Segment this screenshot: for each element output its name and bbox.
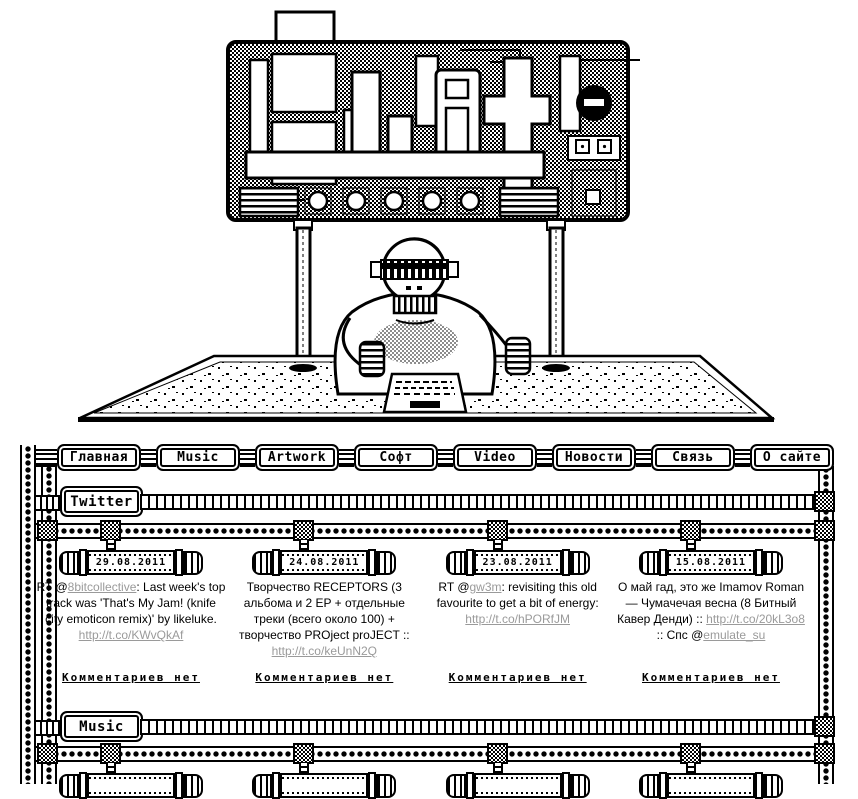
tweet-card: 24.08.2011 Творчество RECEPTORS (3 альбо… [229, 550, 419, 684]
plate-coil-icon [639, 774, 659, 798]
tweet-link[interactable]: http://t.co/KWvQkAf [79, 628, 184, 642]
pipe-junction [814, 743, 835, 764]
nav-button-label: Софт [379, 450, 412, 465]
music-card-partial [36, 773, 226, 798]
billboard [228, 12, 640, 230]
nav-button-osayte[interactable]: О сайте [750, 444, 834, 471]
pipe-junction [680, 520, 701, 541]
post-date: 23.08.2011 [474, 550, 562, 575]
tweet-text-segment: RT @ [37, 580, 68, 594]
plate-coil-icon [446, 774, 466, 798]
pipe-drop [493, 762, 503, 773]
tweet-link[interactable]: emulate_su [703, 628, 765, 642]
nav-button-artwork[interactable]: Artwork [255, 444, 339, 471]
plate-cap [368, 772, 376, 799]
post-date: 29.08.2011 [87, 550, 175, 575]
plate-cap [272, 772, 280, 799]
tweet-card: 23.08.2011 RT @gw3m: revisiting this old… [423, 550, 613, 684]
tweet-link[interactable]: http://t.co/20kL3o8 [706, 612, 805, 626]
pipe-coupler [636, 449, 651, 467]
comments-link[interactable]: Комментариев нет [449, 671, 587, 684]
plate-cap [562, 772, 570, 799]
music-card-partial [423, 773, 613, 798]
post-date [87, 773, 175, 798]
pipe-drop [106, 539, 116, 550]
pipe-junction [293, 743, 314, 764]
nav-button-music[interactable]: Music [156, 444, 240, 471]
plate-cap [272, 549, 280, 576]
twitter-posts: 29.08.2011 RT @8bitcollective: Last week… [36, 550, 806, 684]
post-date: 15.08.2011 [667, 550, 755, 575]
pipe-stub [34, 495, 60, 511]
nav-button-label: Главная [70, 450, 128, 465]
nav-button-label: Music [177, 450, 219, 465]
section-label-twitter[interactable]: Twitter [60, 486, 143, 517]
pipe-stub [34, 720, 60, 736]
plate-cap [466, 549, 474, 576]
pipe-drop [686, 539, 696, 550]
music-conveyor-pipe [36, 746, 834, 762]
twitter-label-pipe [140, 494, 820, 510]
nav-button-label: Artwork [268, 450, 326, 465]
nav-button-label: Новости [565, 450, 623, 465]
comments-link[interactable]: Комментариев нет [62, 671, 200, 684]
plate-cap [79, 772, 87, 799]
twitter-conveyor-pipe [36, 523, 834, 539]
music-label-pipe [140, 719, 820, 735]
tweet-text-segment: :: Спс @ [657, 628, 704, 642]
plate-coil-icon [183, 551, 203, 575]
date-plate: 23.08.2011 [446, 550, 590, 575]
plate-coil-icon [570, 551, 590, 575]
plate-cap [755, 772, 763, 799]
nav-button-label: Связь [672, 450, 714, 465]
pipe-junction [37, 743, 58, 764]
plate-coil-icon [252, 551, 272, 575]
nav-button-label: Video [474, 450, 516, 465]
pipe-junction [487, 743, 508, 764]
post-date: 24.08.2011 [280, 550, 368, 575]
pipe-drop [299, 762, 309, 773]
plate-coil-icon [446, 551, 466, 575]
pipe-junction [680, 743, 701, 764]
pipe-drop [686, 762, 696, 773]
pipe-drop [106, 762, 116, 773]
pipe-junction [814, 716, 835, 737]
pipe-coupler [141, 449, 156, 467]
pipe-coupler [537, 449, 552, 467]
pipe-coupler [36, 449, 57, 467]
plate-cap [659, 772, 667, 799]
date-plate: 24.08.2011 [252, 550, 396, 575]
pipe-coupler [735, 449, 750, 467]
plate-cap [175, 549, 183, 576]
nav-button-label: О сайте [763, 450, 821, 465]
plate-coil-icon [59, 774, 79, 798]
tweet-text: О май гад, это же Imamov Roman — Чумачеч… [616, 579, 806, 671]
plate-coil-icon [639, 551, 659, 575]
page: Главная Music Artwork Софт Video Новости… [0, 0, 858, 784]
tweet-text: Творчество RECEPTORS (3 альбома и 2 EP +… [229, 579, 419, 671]
plate-cap [755, 549, 763, 576]
pipe-coupler [438, 449, 453, 467]
post-date [667, 773, 755, 798]
comments-link[interactable]: Комментариев нет [255, 671, 393, 684]
tweet-text: RT @gw3m: revisiting this old favourite … [423, 579, 613, 671]
nav-button-svyaz[interactable]: Связь [651, 444, 735, 471]
date-plate [59, 773, 203, 798]
plate-coil-icon [763, 774, 783, 798]
pipe-coupler [339, 449, 354, 467]
pipe-junction [487, 520, 508, 541]
post-date [474, 773, 562, 798]
comments-link[interactable]: Комментариев нет [642, 671, 780, 684]
plate-coil-icon [763, 551, 783, 575]
post-date [280, 773, 368, 798]
pipe-junction [100, 520, 121, 541]
nav-button-novosti[interactable]: Новости [552, 444, 636, 471]
plate-cap [659, 549, 667, 576]
section-label-music[interactable]: Music [60, 711, 143, 742]
date-plate [446, 773, 590, 798]
date-plate [639, 773, 783, 798]
tweet-text-segment: RT @ [438, 580, 469, 594]
plate-coil-icon [59, 551, 79, 575]
music-card-partial [616, 773, 806, 798]
date-plate: 15.08.2011 [639, 550, 783, 575]
music-card-partial [229, 773, 419, 798]
pipe-drop [493, 539, 503, 550]
section-label-text: Twitter [70, 494, 133, 510]
plate-cap [562, 549, 570, 576]
tweet-card: 29.08.2011 RT @8bitcollective: Last week… [36, 550, 226, 684]
plate-coil-icon [252, 774, 272, 798]
date-plate: 29.08.2011 [59, 550, 203, 575]
section-label-text: Music [79, 719, 124, 735]
plate-coil-icon [570, 774, 590, 798]
tweet-card: 15.08.2011 О май гад, это же Imamov Roma… [616, 550, 806, 684]
plate-cap [79, 549, 87, 576]
plate-coil-icon [376, 551, 396, 575]
pipe-drop [299, 539, 309, 550]
tweet-link[interactable]: http://t.co/keUnN2Q [272, 644, 377, 658]
pipe-junction [293, 520, 314, 541]
music-posts [36, 773, 806, 798]
pipe-junction [100, 743, 121, 764]
main-nav: Главная Music Artwork Софт Video Новости… [36, 444, 834, 471]
pipe-junction [37, 520, 58, 541]
plate-cap [175, 772, 183, 799]
plate-coil-icon [376, 774, 396, 798]
pipe-coupler [240, 449, 255, 467]
tweet-text: RT @8bitcollective: Last week's top trac… [36, 579, 226, 671]
plate-cap [368, 549, 376, 576]
tweet-link[interactable]: 8bitcollective [68, 580, 137, 594]
pipe-junction [814, 520, 835, 541]
tweet-link[interactable]: http://t.co/hPORfJM [465, 612, 570, 626]
tweet-text-segment: Творчество RECEPTORS (3 альбома и 2 EP +… [239, 580, 410, 642]
date-plate [252, 773, 396, 798]
nav-button-soft[interactable]: Софт [354, 444, 438, 471]
pipe-junction [814, 491, 835, 512]
plate-cap [466, 772, 474, 799]
tweet-link[interactable]: gw3m [470, 580, 502, 594]
header-pixel-art [0, 0, 858, 432]
nav-button-video[interactable]: Video [453, 444, 537, 471]
nav-button-glavnaya[interactable]: Главная [57, 444, 141, 471]
plate-coil-icon [183, 774, 203, 798]
